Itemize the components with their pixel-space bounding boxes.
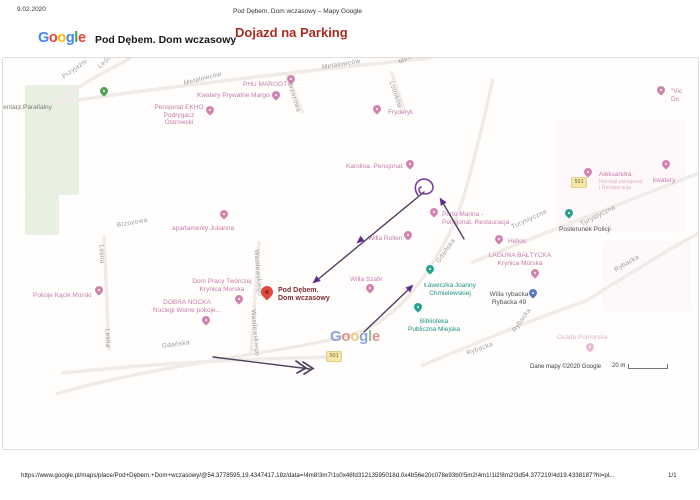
poi-label-line: Krynica Morska xyxy=(487,260,553,268)
map-scale: 20 m xyxy=(612,363,668,369)
logo-letter: e xyxy=(372,328,380,345)
map-pin-icon xyxy=(402,229,413,240)
map-pin-icon xyxy=(428,206,439,217)
poi-label: Pod Dębem.Dom wczasowy xyxy=(278,287,330,303)
page-heading: Dojazd na Parking xyxy=(235,25,348,40)
street-label: Wasilewskiego xyxy=(250,309,261,356)
landuse-area xyxy=(25,85,79,195)
poi-label: Osada Pomorska xyxy=(557,334,607,342)
map-pin-icon xyxy=(364,282,375,293)
poi-label-line: apartamenty Julianna xyxy=(172,225,234,233)
street-label: Leśna xyxy=(104,328,112,347)
logo-letter: G xyxy=(330,328,341,345)
route-501-badge: 501 xyxy=(326,351,342,362)
poi-label-line: Dom wczasowy xyxy=(278,295,330,303)
landuse-area xyxy=(25,193,59,235)
poi-label-line: Ławeczka Joanny xyxy=(419,282,481,290)
route-arrow xyxy=(303,362,313,374)
poi-label-line: Pod Dębem. xyxy=(278,287,330,295)
poi-label-line: Aleksandra xyxy=(599,171,643,179)
map-pin-icon xyxy=(233,293,244,304)
logo-letter: o xyxy=(341,328,350,345)
poi-label-line: DOBRA NOCKA xyxy=(147,299,227,307)
poi-label: Ławeczka JoannyChmielewskiej xyxy=(419,282,481,297)
route-arrowhead xyxy=(313,276,320,283)
poi-label: Cmentarz Parafialny xyxy=(2,104,52,112)
route-arrowhead xyxy=(440,198,446,206)
poi-label: Kwatery Prywatne Margo xyxy=(197,92,270,100)
poi-label-line: Osada Pomorska xyxy=(557,334,607,342)
street-label: Brzozowa xyxy=(286,81,302,113)
route-arrow xyxy=(364,289,409,332)
street-label: Rybacka xyxy=(466,341,494,357)
document-title: Pod Dębem. Dom wczasowy – Mapy Google xyxy=(233,8,362,15)
poi-label-line: Willa rybacka xyxy=(485,291,533,299)
poi-label-line: Noclegi Wolne pokoje... xyxy=(147,307,227,315)
poi-label: LAGUNA BAŁTYCKAKrynica Morska xyxy=(487,252,553,267)
poi-label: Willa Szafir xyxy=(350,276,383,284)
road-line xyxy=(56,79,493,394)
poi-label-line: Pensjonat EKHO xyxy=(149,104,209,112)
poi-label-line: Publiczna Miejska xyxy=(404,326,464,334)
route-501-badge: 501 xyxy=(571,177,587,188)
page-number: 1/1 xyxy=(668,472,677,479)
map-pin-icon xyxy=(584,341,595,352)
street-label: Metalowców xyxy=(398,57,436,66)
poi-label: Willa rybackaRybacka 49 xyxy=(485,291,533,306)
poi-label: "VicDo xyxy=(671,88,682,103)
street-label: Metalowców xyxy=(183,71,222,87)
poi-label-line: Biblioteka xyxy=(404,318,464,326)
poi-label: DOBRA NOCKANoclegi Wolne pokoje... xyxy=(147,299,227,314)
poi-label-line: Karolina. Pensjonat xyxy=(346,163,402,171)
poi-label: Willa Rollen xyxy=(368,235,402,243)
poi-label: Fryderyk xyxy=(388,109,413,117)
poi-label-line: Porto Marina - xyxy=(442,211,509,219)
map-pin-icon xyxy=(270,89,281,100)
poi-label-line: "Vic xyxy=(671,88,682,96)
map-attribution: Dane mapy ©2020 Google xyxy=(530,364,601,370)
map-pin-icon xyxy=(493,233,504,244)
poi-label-line: Krynica Morska xyxy=(187,286,257,294)
logo-letter: G xyxy=(38,30,49,46)
place-title: Pod Dębem. Dom wczasowy xyxy=(95,34,236,46)
poi-label-line: Chmielewskiej xyxy=(419,290,481,298)
scale-label: 20 m xyxy=(612,363,625,369)
map-pin-icon xyxy=(93,284,104,295)
route-arrows-layer xyxy=(3,58,698,449)
street-label: Leśna xyxy=(97,57,116,70)
google-logo: Google xyxy=(38,30,86,46)
poi-label: Pensjonat EKHOPodrygacz Ostrowski xyxy=(149,104,209,127)
street-label: Brzozowa xyxy=(116,217,148,229)
poi-label: BibliotekaPubliczna Miejska xyxy=(404,318,464,333)
poi-label-line: Helios xyxy=(508,238,526,246)
poi-label: Porto Marina -Pensjonat, Restauracja xyxy=(442,211,509,226)
poi-label-line: Fryderyk xyxy=(388,109,413,117)
poi-label: apartamenty Julianna xyxy=(172,225,234,233)
map-pin-icon xyxy=(200,314,211,325)
poi-sublabel: Noclegi pensjonat xyxy=(599,179,643,185)
poi-label-line: Cmentarz Parafialny xyxy=(2,104,52,112)
poi-label-line: Pokoje Kącik Morski xyxy=(33,292,92,300)
route-arrowhead xyxy=(406,285,413,292)
map-pin-icon xyxy=(98,85,109,96)
street-label: Gdańska xyxy=(162,339,191,350)
poi-label-line: Willa Rollen xyxy=(368,235,402,243)
scale-bar xyxy=(628,364,668,369)
road-line xyxy=(61,357,341,373)
poi-label: Karolina. Pensjonat xyxy=(346,163,402,171)
poi-label: Posterunek Policji xyxy=(559,226,611,234)
street-label: Lotników xyxy=(388,80,403,109)
poi-label-line: PHU MARGOT xyxy=(243,81,287,89)
route-arrowhead xyxy=(357,236,364,243)
landuse-area xyxy=(601,241,691,311)
poi-label-line: Podrygacz Ostrowski xyxy=(149,112,209,127)
route-arrow xyxy=(213,357,310,369)
poi-label-line: LAGUNA BAŁTYCKA xyxy=(487,252,553,260)
poi-label-line: Posterunek Policji xyxy=(559,226,611,234)
footer-url: https://www.google.pl/maps/place/Pod+Dęb… xyxy=(21,472,614,479)
google-watermark: Google xyxy=(330,328,380,345)
map-pin-icon xyxy=(424,263,435,274)
poi-label-line: Kwatery Prywatne Margo xyxy=(197,92,270,100)
map-pin-icon xyxy=(218,208,229,219)
map-pin-icon xyxy=(371,103,382,114)
logo-letter: o xyxy=(350,328,359,345)
poi-label: Pokoje Kącik Morski xyxy=(33,292,92,300)
route-curl-mark xyxy=(415,179,433,195)
poi-label-line: Dom Pracy Twórczej xyxy=(187,278,257,286)
map-pin-icon xyxy=(529,267,540,278)
map-pin-icon xyxy=(404,158,415,169)
street-label: Przyjaźni xyxy=(61,58,89,80)
map-pin-icon xyxy=(412,301,423,312)
poi-label: kwatery xyxy=(653,177,675,185)
poi-label: Dom Pracy TwórczejKrynica Morska xyxy=(187,278,257,293)
street-label: Turystyczna xyxy=(511,208,548,230)
street-label: Gdańska xyxy=(435,237,457,264)
street-label: Leśna xyxy=(98,244,106,263)
poi-label: AleksandraNoclegi pensjonati Restauracja xyxy=(599,171,643,191)
poi-sublabel: i Restauracja xyxy=(599,185,643,191)
street-label: Metalowców xyxy=(321,58,360,71)
logo-letter: g xyxy=(359,328,368,345)
poi-label-line: Willa Szafir xyxy=(350,276,383,284)
map-canvas: PrzyjaźniLeśnaMetalowcówMetalowcówMetalo… xyxy=(2,57,699,450)
poi-label-line: Rybacka 49 xyxy=(485,299,533,307)
map-roads-layer xyxy=(3,58,698,449)
poi-label-line: Do xyxy=(671,96,682,104)
poi-label: PHU MARGOT xyxy=(243,81,287,89)
logo-letter: e xyxy=(78,30,86,46)
poi-label-line: kwatery xyxy=(653,177,675,185)
street-label: Rybacka xyxy=(511,307,532,333)
poi-label: Helios xyxy=(508,238,526,246)
map-pin-icon xyxy=(655,84,666,95)
logo-letter: o xyxy=(57,30,65,46)
poi-label-line: Pensjonat, Restauracja xyxy=(442,219,509,227)
print-date: 9.02.2020 xyxy=(17,6,46,13)
route-arrow xyxy=(296,361,306,373)
